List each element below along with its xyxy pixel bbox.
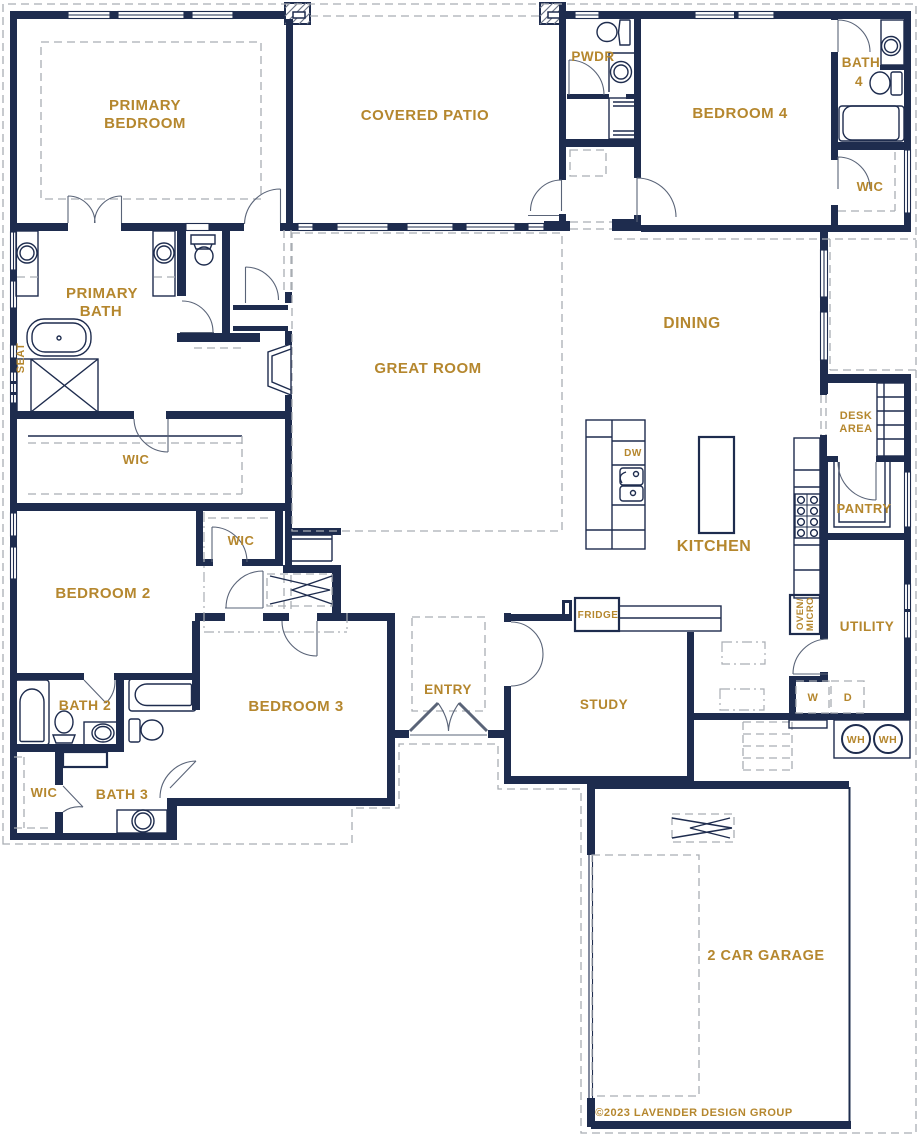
svg-text:W: W — [808, 692, 819, 704]
svg-text:PANTRY: PANTRY — [837, 501, 892, 516]
svg-text:SEAT: SEAT — [15, 343, 27, 374]
svg-text:DESK: DESK — [840, 410, 873, 422]
svg-text:WH: WH — [879, 734, 898, 746]
svg-text:BATH 3: BATH 3 — [96, 786, 149, 802]
svg-text:BEDROOM 3: BEDROOM 3 — [248, 698, 343, 715]
svg-text:BATH: BATH — [842, 55, 881, 70]
svg-text:STUDY: STUDY — [580, 697, 628, 712]
svg-text:BATH: BATH — [80, 303, 123, 320]
svg-text:PRIMARY: PRIMARY — [66, 285, 138, 302]
svg-text:DW: DW — [624, 448, 642, 459]
svg-text:WIC: WIC — [857, 179, 884, 194]
svg-text:PRIMARY: PRIMARY — [109, 97, 181, 114]
svg-text:BATH 2: BATH 2 — [59, 697, 112, 713]
svg-text:AREA: AREA — [839, 423, 872, 435]
svg-text:COVERED PATIO: COVERED PATIO — [361, 107, 489, 124]
svg-text:BEDROOM 4: BEDROOM 4 — [692, 105, 788, 122]
svg-text:©2023 LAVENDER DESIGN GROUP: ©2023 LAVENDER DESIGN GROUP — [595, 1107, 792, 1119]
svg-text:UTILITY: UTILITY — [840, 619, 895, 634]
svg-text:DINING: DINING — [663, 315, 720, 332]
svg-text:WH: WH — [847, 734, 866, 746]
svg-text:WIC: WIC — [123, 452, 150, 467]
svg-text:ENTRY: ENTRY — [424, 682, 472, 697]
svg-text:WIC: WIC — [31, 785, 58, 800]
svg-text:2 CAR GARAGE: 2 CAR GARAGE — [707, 948, 824, 964]
svg-text:KITCHEN: KITCHEN — [677, 538, 752, 555]
svg-text:MICRO: MICRO — [805, 597, 816, 631]
svg-text:4: 4 — [855, 74, 863, 89]
svg-text:GREAT ROOM: GREAT ROOM — [374, 360, 481, 377]
svg-text:BEDROOM 2: BEDROOM 2 — [55, 585, 150, 602]
svg-text:D: D — [844, 692, 852, 704]
svg-text:PWDR: PWDR — [571, 49, 614, 64]
svg-text:FRIDGE: FRIDGE — [578, 610, 619, 621]
svg-text:BEDROOM: BEDROOM — [104, 115, 186, 132]
svg-text:WIC: WIC — [228, 533, 255, 548]
